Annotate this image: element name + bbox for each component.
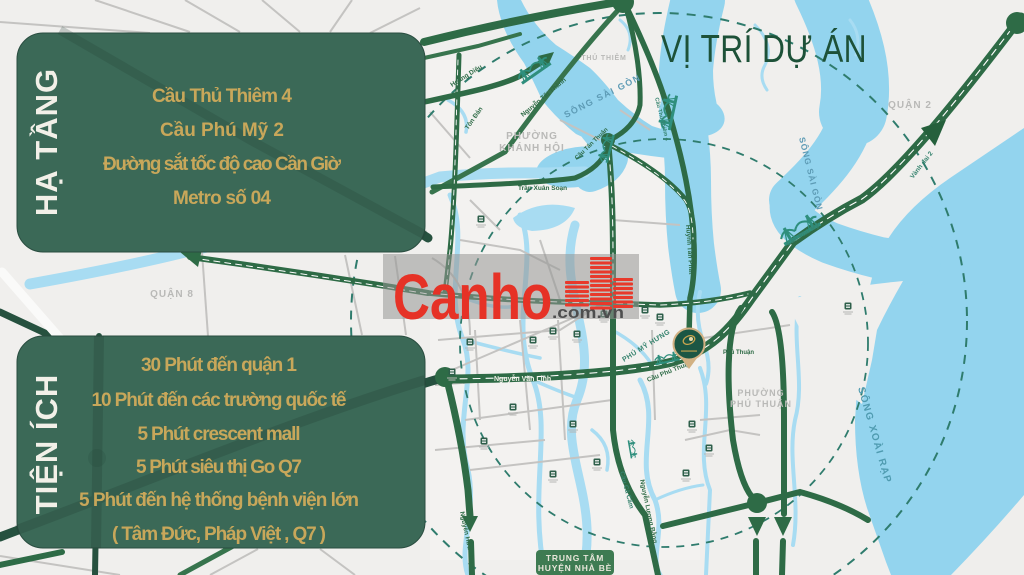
svg-text:PHƯỜNG: PHƯỜNG — [506, 129, 558, 142]
svg-text:KHÁNH HỘI: KHÁNH HỘI — [499, 141, 565, 154]
svg-text:TRUNG TÂM: TRUNG TÂM — [546, 552, 604, 563]
svg-text:TIỆN ÍCH: TIỆN ÍCH — [28, 374, 64, 515]
svg-text:Cầu Phú Mỹ 2: Cầu Phú Mỹ 2 — [160, 120, 284, 141]
svg-text:Metro số 04: Metro số 04 — [173, 188, 271, 209]
svg-text:PHƯỜNG: PHƯỜNG — [737, 387, 784, 398]
svg-text:Canho: Canho — [393, 263, 552, 334]
svg-text:( Tâm Đức, Pháp Việt , Q7 ): ( Tâm Đức, Pháp Việt , Q7 ) — [112, 524, 326, 545]
svg-text:HUYỆN NHÀ BÈ: HUYỆN NHÀ BÈ — [538, 562, 612, 573]
svg-text:THỦ THIÊM: THỦ THIÊM — [581, 53, 626, 62]
svg-text:Trần Xuân Soạn: Trần Xuân Soạn — [518, 183, 567, 192]
svg-text:QUẬN 8: QUẬN 8 — [150, 287, 194, 300]
svg-text:VỊ TRÍ DỰ ÁN: VỊ TRÍ DỰ ÁN — [661, 28, 867, 71]
svg-text:5 Phút crescent mall: 5 Phút crescent mall — [138, 424, 301, 445]
svg-text:10 Phút đến các trường quốc tế: 10 Phút đến các trường quốc tế — [92, 390, 347, 411]
svg-text:PHÚ THUẬN: PHÚ THUẬN — [730, 398, 792, 409]
svg-text:5 Phút đến hệ thống bệnh viện: 5 Phút đến hệ thống bệnh viện lớn — [79, 490, 359, 511]
svg-text:Nguyễn Văn Linh: Nguyễn Văn Linh — [494, 374, 551, 383]
svg-text:30 Phút đến quận 1: 30 Phút đến quận 1 — [141, 355, 297, 376]
svg-text:Phú Thuận: Phú Thuận — [723, 350, 754, 356]
svg-text:Cầu Thủ Thiêm 4: Cầu Thủ Thiêm 4 — [152, 86, 292, 107]
svg-text:QUẬN 2: QUẬN 2 — [888, 98, 932, 111]
svg-text:HẠ TẦNG: HẠ TẦNG — [29, 68, 64, 216]
svg-text:Đường sắt tốc độ cao Cần Giờ: Đường sắt tốc độ cao Cần Giờ — [103, 153, 341, 175]
svg-text:5 Phút siêu thị Go Q7: 5 Phút siêu thị Go Q7 — [136, 457, 302, 478]
